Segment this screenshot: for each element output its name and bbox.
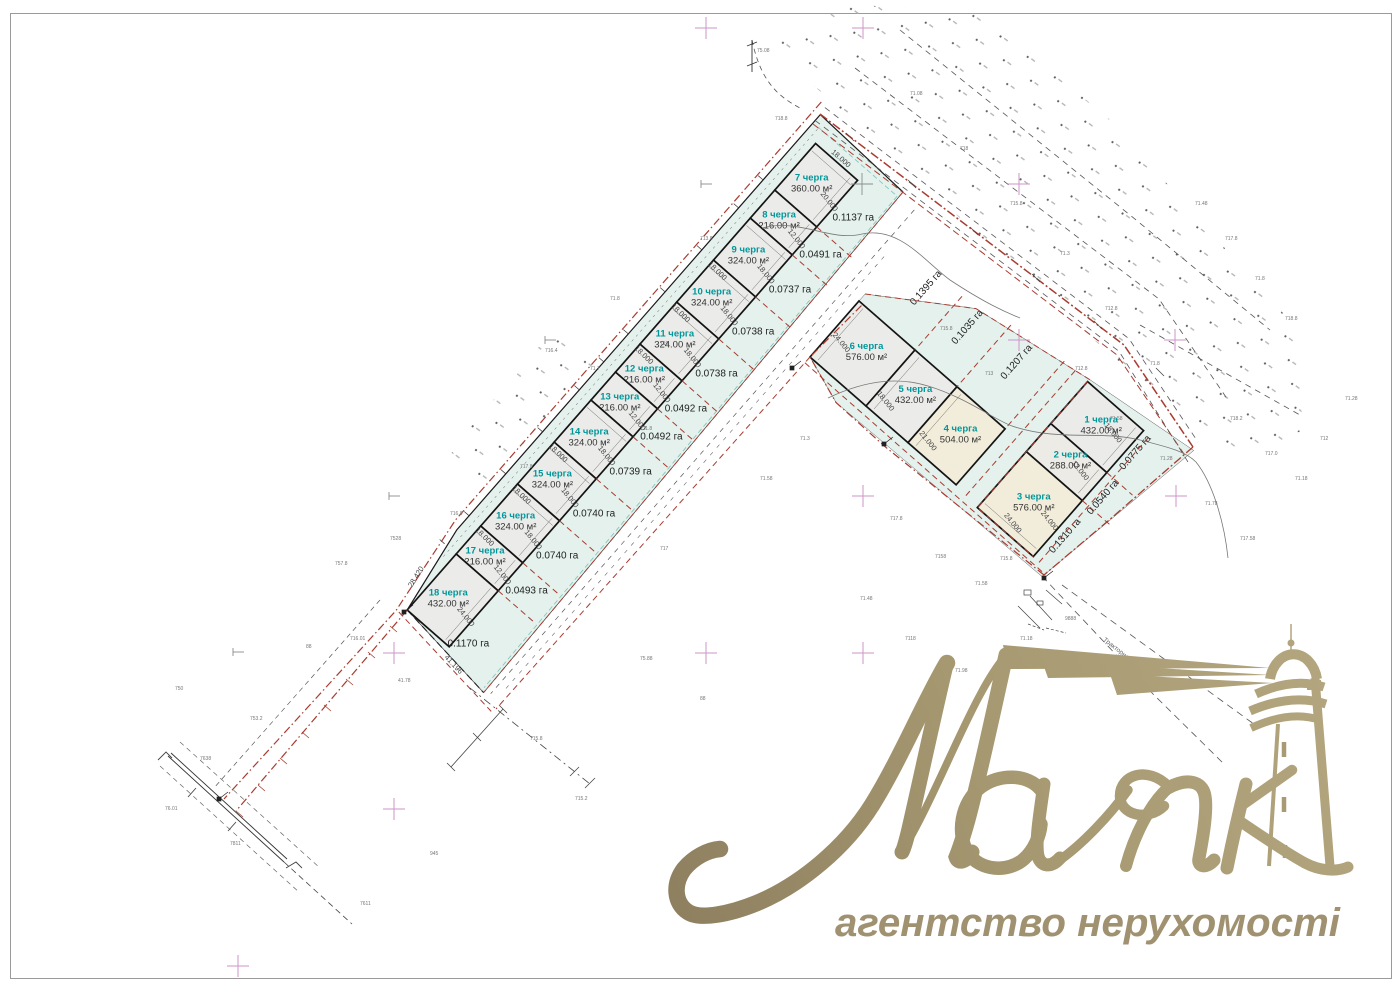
svg-text:716.4: 716.4	[545, 348, 558, 354]
svg-text:71.7: 71.7	[590, 366, 600, 372]
svg-text:71.3: 71.3	[1060, 251, 1070, 257]
svg-text:7638: 7638	[200, 756, 211, 762]
svg-text:4 черга: 4 черга	[944, 423, 978, 434]
svg-text:71.8: 71.8	[1255, 276, 1265, 282]
svg-text:76.01: 76.01	[165, 806, 178, 812]
svg-text:750: 750	[175, 686, 184, 692]
svg-text:0.0740 га: 0.0740 га	[536, 551, 579, 562]
svg-text:12 черга: 12 черга	[625, 364, 665, 375]
svg-text:945: 945	[430, 851, 439, 857]
svg-text:75.08: 75.08	[757, 48, 770, 54]
svg-text:7 черга: 7 черга	[795, 172, 829, 183]
svg-text:71.98: 71.98	[955, 668, 968, 674]
svg-text:717.8: 717.8	[1225, 236, 1238, 242]
svg-text:715.8: 715.8	[1010, 201, 1023, 207]
svg-text:6 черга: 6 черга	[850, 341, 884, 352]
svg-text:11 черга: 11 черга	[656, 329, 695, 340]
svg-text:9 черга: 9 черга	[732, 245, 766, 256]
svg-text:0.0492 га: 0.0492 га	[640, 432, 683, 443]
svg-text:715.8: 715.8	[1000, 556, 1013, 562]
svg-text:18 черга: 18 черга	[429, 588, 469, 599]
svg-text:71.18: 71.18	[1020, 636, 1033, 642]
svg-text:15 черга: 15 черга	[533, 469, 573, 480]
svg-text:718: 718	[960, 146, 969, 152]
svg-text:3 черга: 3 черга	[1017, 492, 1051, 503]
svg-text:712.8: 712.8	[1075, 366, 1088, 372]
svg-text:17 черга: 17 черга	[465, 546, 505, 557]
svg-text:71.48: 71.48	[1195, 201, 1208, 207]
svg-text:753.2: 753.2	[250, 716, 263, 722]
svg-text:2 черга: 2 черга	[1054, 450, 1088, 461]
svg-text:576.00 м²: 576.00 м²	[846, 352, 887, 363]
svg-text:75.88: 75.88	[640, 656, 653, 662]
svg-text:718.2: 718.2	[1230, 416, 1243, 422]
svg-text:71.28: 71.28	[1345, 396, 1358, 402]
svg-text:7811: 7811	[230, 841, 241, 847]
svg-text:0.0739 га: 0.0739 га	[610, 467, 653, 478]
svg-text:агентство нерухомості: агентство нерухомості	[835, 901, 1341, 945]
svg-text:71.48: 71.48	[860, 596, 873, 602]
svg-text:71.3: 71.3	[800, 436, 810, 442]
svg-text:717: 717	[660, 546, 669, 552]
svg-text:719: 719	[660, 341, 669, 347]
svg-text:88: 88	[700, 696, 706, 702]
svg-text:0.0493 га: 0.0493 га	[505, 586, 548, 597]
svg-text:71.8: 71.8	[1150, 361, 1160, 367]
svg-text:713.8: 713.8	[700, 236, 713, 242]
svg-text:0.0738 га: 0.0738 га	[695, 369, 738, 380]
svg-text:10 черга: 10 черга	[692, 287, 732, 298]
svg-text:88: 88	[306, 644, 312, 650]
svg-text:0.0491 га: 0.0491 га	[799, 250, 842, 261]
svg-text:16 черга: 16 черга	[496, 511, 536, 522]
svg-text:718.8: 718.8	[1285, 316, 1298, 322]
svg-text:7118: 7118	[905, 636, 916, 642]
svg-text:8 черга: 8 черга	[762, 210, 796, 221]
svg-text:715.8: 715.8	[940, 326, 953, 332]
svg-text:715.8: 715.8	[530, 736, 543, 742]
svg-text:0.0492 га: 0.0492 га	[665, 404, 708, 415]
svg-text:717.0: 717.0	[1265, 451, 1278, 457]
svg-text:716.9: 716.9	[450, 511, 463, 517]
svg-text:432.00 м²: 432.00 м²	[895, 395, 936, 406]
svg-text:0.1170 га: 0.1170 га	[448, 638, 490, 649]
svg-text:5 черга: 5 черга	[899, 384, 933, 395]
svg-text:7611: 7611	[360, 901, 371, 907]
svg-text:71.08: 71.08	[910, 91, 923, 97]
svg-text:0.0737 га: 0.0737 га	[769, 285, 812, 296]
svg-text:716.01: 716.01	[350, 636, 366, 642]
svg-text:712.8: 712.8	[1105, 306, 1118, 312]
svg-text:504.00 м²: 504.00 м²	[940, 434, 981, 445]
svg-text:717.58: 717.58	[1240, 536, 1256, 542]
svg-text:71.58: 71.58	[1110, 416, 1123, 422]
svg-text:0.1137 га: 0.1137 га	[832, 212, 874, 223]
svg-text:13 черга: 13 черга	[600, 392, 640, 403]
svg-text:711.8: 711.8	[640, 426, 652, 432]
svg-text:14 черга: 14 черга	[570, 427, 610, 438]
svg-text:71.78: 71.78	[1205, 501, 1218, 507]
svg-text:41.78: 41.78	[398, 678, 411, 684]
svg-text:71.18: 71.18	[1295, 476, 1308, 482]
svg-text:717.8: 717.8	[890, 516, 903, 522]
svg-text:0.0740 га: 0.0740 га	[573, 509, 616, 520]
svg-text:715.2: 715.2	[575, 796, 588, 802]
svg-text:757.8: 757.8	[335, 561, 348, 567]
svg-text:71.8: 71.8	[610, 296, 620, 302]
svg-text:71.58: 71.58	[760, 476, 773, 482]
svg-text:71.28: 71.28	[1160, 456, 1173, 462]
svg-text:713: 713	[985, 371, 994, 377]
svg-text:0.0738 га: 0.0738 га	[732, 327, 775, 338]
svg-text:7528: 7528	[390, 536, 401, 542]
svg-text:7158: 7158	[935, 554, 946, 560]
svg-text:71.58: 71.58	[975, 581, 988, 587]
svg-text:717.8: 717.8	[520, 464, 533, 470]
svg-text:9888: 9888	[1065, 616, 1076, 622]
svg-text:718.8: 718.8	[775, 116, 788, 122]
svg-text:712: 712	[1320, 436, 1329, 442]
